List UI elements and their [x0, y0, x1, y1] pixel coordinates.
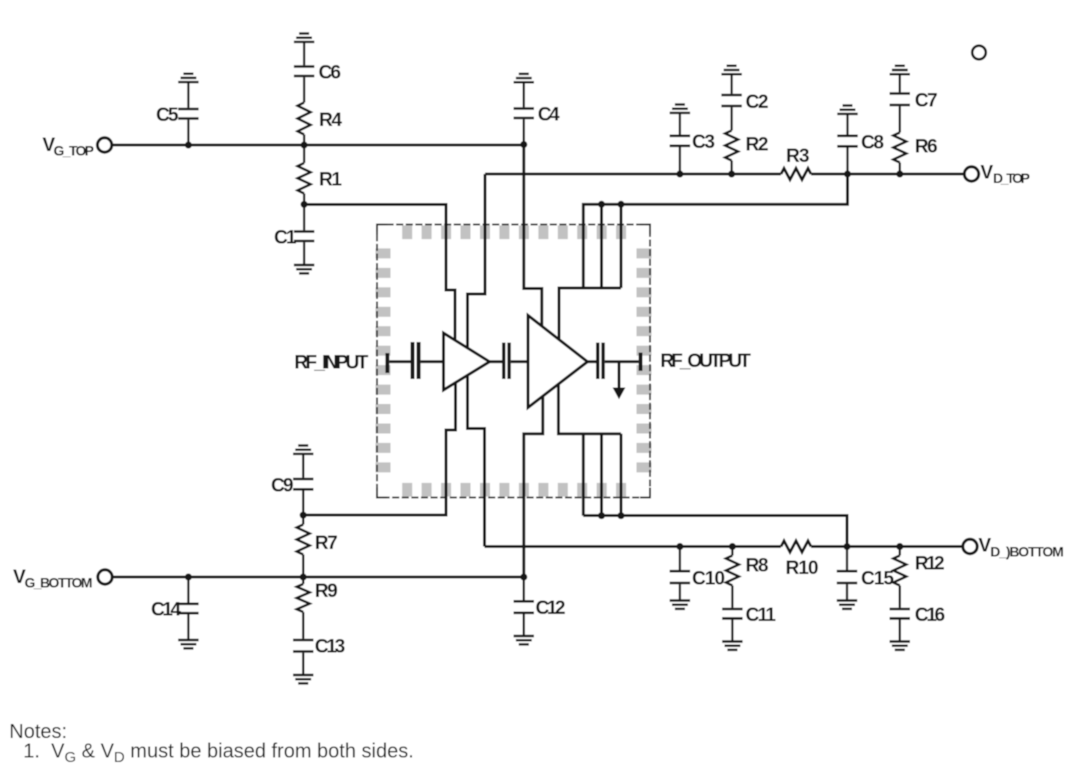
svg-text:RF_OUTPUT: RF_OUTPUT	[660, 351, 751, 372]
svg-text:C2: C2	[746, 92, 769, 113]
svg-text:G_TOP: G_TOP	[54, 143, 95, 159]
svg-text:D_TOP: D_TOP	[993, 170, 1030, 186]
svg-text:R3: R3	[786, 146, 810, 167]
svg-text:C14: C14	[151, 600, 181, 621]
svg-text:R2: R2	[746, 135, 769, 156]
svg-text:R12: R12	[915, 554, 945, 575]
svg-text:C3: C3	[692, 132, 715, 153]
svg-text:R1: R1	[319, 170, 342, 191]
svg-text:C8: C8	[861, 132, 884, 153]
svg-text:1. VG & VD must be biased fro: 1. VG & VD must be biased from both side…	[23, 741, 414, 767]
svg-text:C11: C11	[746, 605, 777, 626]
svg-text:C12: C12	[536, 598, 566, 619]
svg-text:C9: C9	[271, 475, 294, 496]
svg-text:C1: C1	[274, 228, 297, 249]
svg-text:R10: R10	[786, 558, 819, 579]
svg-text:C15: C15	[861, 568, 894, 589]
svg-text:R8: R8	[746, 556, 769, 577]
svg-text:C7: C7	[915, 91, 938, 112]
svg-text:C6: C6	[319, 63, 342, 84]
svg-text:C5: C5	[156, 105, 179, 126]
svg-text:C16: C16	[915, 605, 946, 626]
svg-text:R9: R9	[315, 581, 338, 602]
svg-text:C4: C4	[538, 105, 560, 126]
svg-text:V: V	[980, 162, 993, 183]
svg-text:G_BOTTOM: G_BOTTOM	[25, 575, 93, 591]
svg-text:C13: C13	[315, 637, 346, 658]
svg-text:R7: R7	[315, 533, 338, 554]
svg-text:RF_INPUT: RF_INPUT	[294, 352, 368, 373]
svg-text:D_)BOTTOM: D_)BOTTOM	[990, 544, 1064, 560]
svg-text:R6: R6	[915, 137, 938, 158]
svg-text:C10: C10	[692, 568, 725, 589]
svg-text:R4: R4	[319, 110, 342, 131]
